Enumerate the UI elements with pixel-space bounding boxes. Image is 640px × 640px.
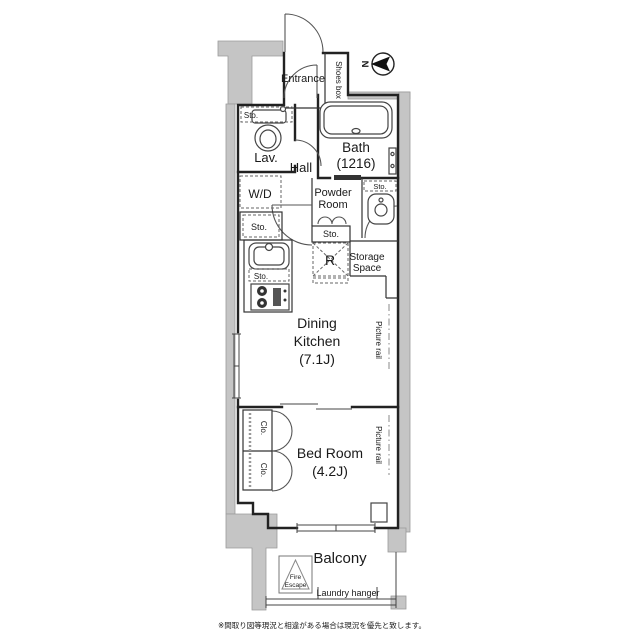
window-bedroom-balcony (297, 523, 375, 533)
entrance-label: Entrance (281, 73, 325, 85)
hall-label: Hall (290, 160, 313, 175)
balcony-label: Balcony (313, 550, 367, 567)
sto-washbasin-label: Sto. (373, 182, 386, 191)
sto-toilet-label: Sto. (244, 111, 258, 120)
sto-left-label: Sto. (251, 222, 267, 232)
stove (251, 284, 289, 310)
floor-plan-page: Entrance Shoes box N Sto. Lav. Hall W/D … (0, 0, 640, 640)
lavatory-label: Lav. (254, 150, 278, 165)
pipe-space-box (371, 503, 387, 522)
picture-rail-label-dk: Picture rail (374, 321, 383, 359)
bed-room-label-line2: (4.2J) (312, 463, 348, 479)
north-label: N (361, 60, 372, 67)
storage-space-label-line1: Storage (349, 252, 384, 263)
powder-room-folding-door (318, 217, 346, 224)
laundry-hanger-label: Laundry hanger (316, 588, 379, 598)
bath-door-sill (334, 175, 361, 180)
bath-label-line1: Bath (342, 140, 370, 155)
north-compass-icon (371, 53, 394, 75)
exterior-wall-right-strip (399, 92, 410, 532)
dining-kitchen-label-line3: (7.1J) (299, 351, 335, 367)
footnote-text: ※間取り図等現況と相違がある場合は現況を優先と致します。 (218, 620, 426, 630)
sto-powder-label: Sto. (323, 229, 339, 239)
fire-escape-label-line1: Fire (290, 574, 302, 581)
powder-room-label-line2: Room (318, 199, 347, 211)
entrance-door (285, 14, 323, 52)
dining-kitchen-label-line1: Dining (297, 315, 337, 331)
fire-escape-label-line2: Escape (285, 582, 307, 589)
exterior-wall-top-left (218, 41, 283, 104)
sto-sink-label: Sto. (254, 272, 268, 281)
wd-label: W/D (248, 187, 272, 201)
bed-room-label-line1: Bed Room (297, 445, 363, 461)
sliding-door-dk-bedroom (280, 404, 352, 409)
closet-folding-doors (272, 411, 292, 491)
hall-dk-door (272, 205, 312, 245)
powder-room-label-line1: Powder (314, 187, 352, 199)
refrigerator-label: R (325, 252, 335, 268)
floor-plan-drawing: Entrance Shoes box N Sto. Lav. Hall W/D … (0, 0, 640, 640)
closet-label-top: Clo. (259, 421, 268, 435)
washbasin (368, 194, 394, 224)
closet-label-bottom: Clo. (259, 463, 268, 477)
exterior-wall-left-strip (226, 104, 235, 514)
shower-unit (389, 148, 396, 174)
balcony-right-pillar-bottom (391, 596, 406, 609)
picture-rail-label-bedroom: Picture rail (374, 426, 383, 464)
shoes-box-label: Shoes box (334, 61, 343, 99)
storage-space-label-line2: Space (353, 263, 382, 274)
balcony-right-pillar-top (388, 528, 406, 552)
dining-kitchen-label-line2: Kitchen (294, 333, 341, 349)
bathtub (320, 102, 392, 138)
bath-label-line2: (1216) (336, 156, 375, 171)
